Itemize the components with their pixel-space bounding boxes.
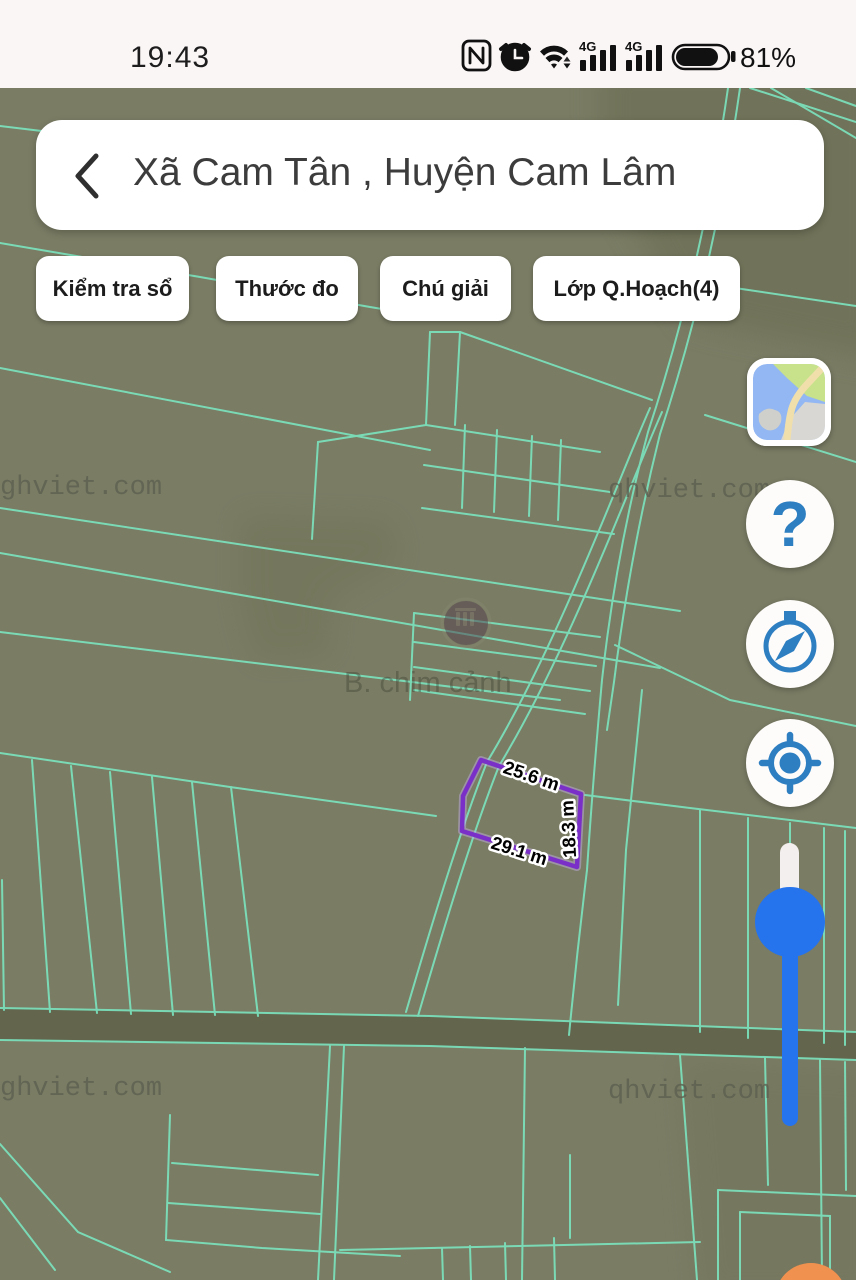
svg-text:B. chim cảnh: B. chim cảnh	[344, 667, 512, 699]
svg-text:18.3 m: 18.3 m	[556, 800, 580, 859]
svg-text:qhviet.com: qhviet.com	[608, 1077, 770, 1107]
svg-text:4G: 4G	[625, 39, 642, 54]
svg-text:4G: 4G	[579, 39, 596, 54]
svg-text:ghviet.com: ghviet.com	[0, 473, 162, 503]
svg-text:ghviet.com: ghviet.com	[0, 1074, 162, 1104]
